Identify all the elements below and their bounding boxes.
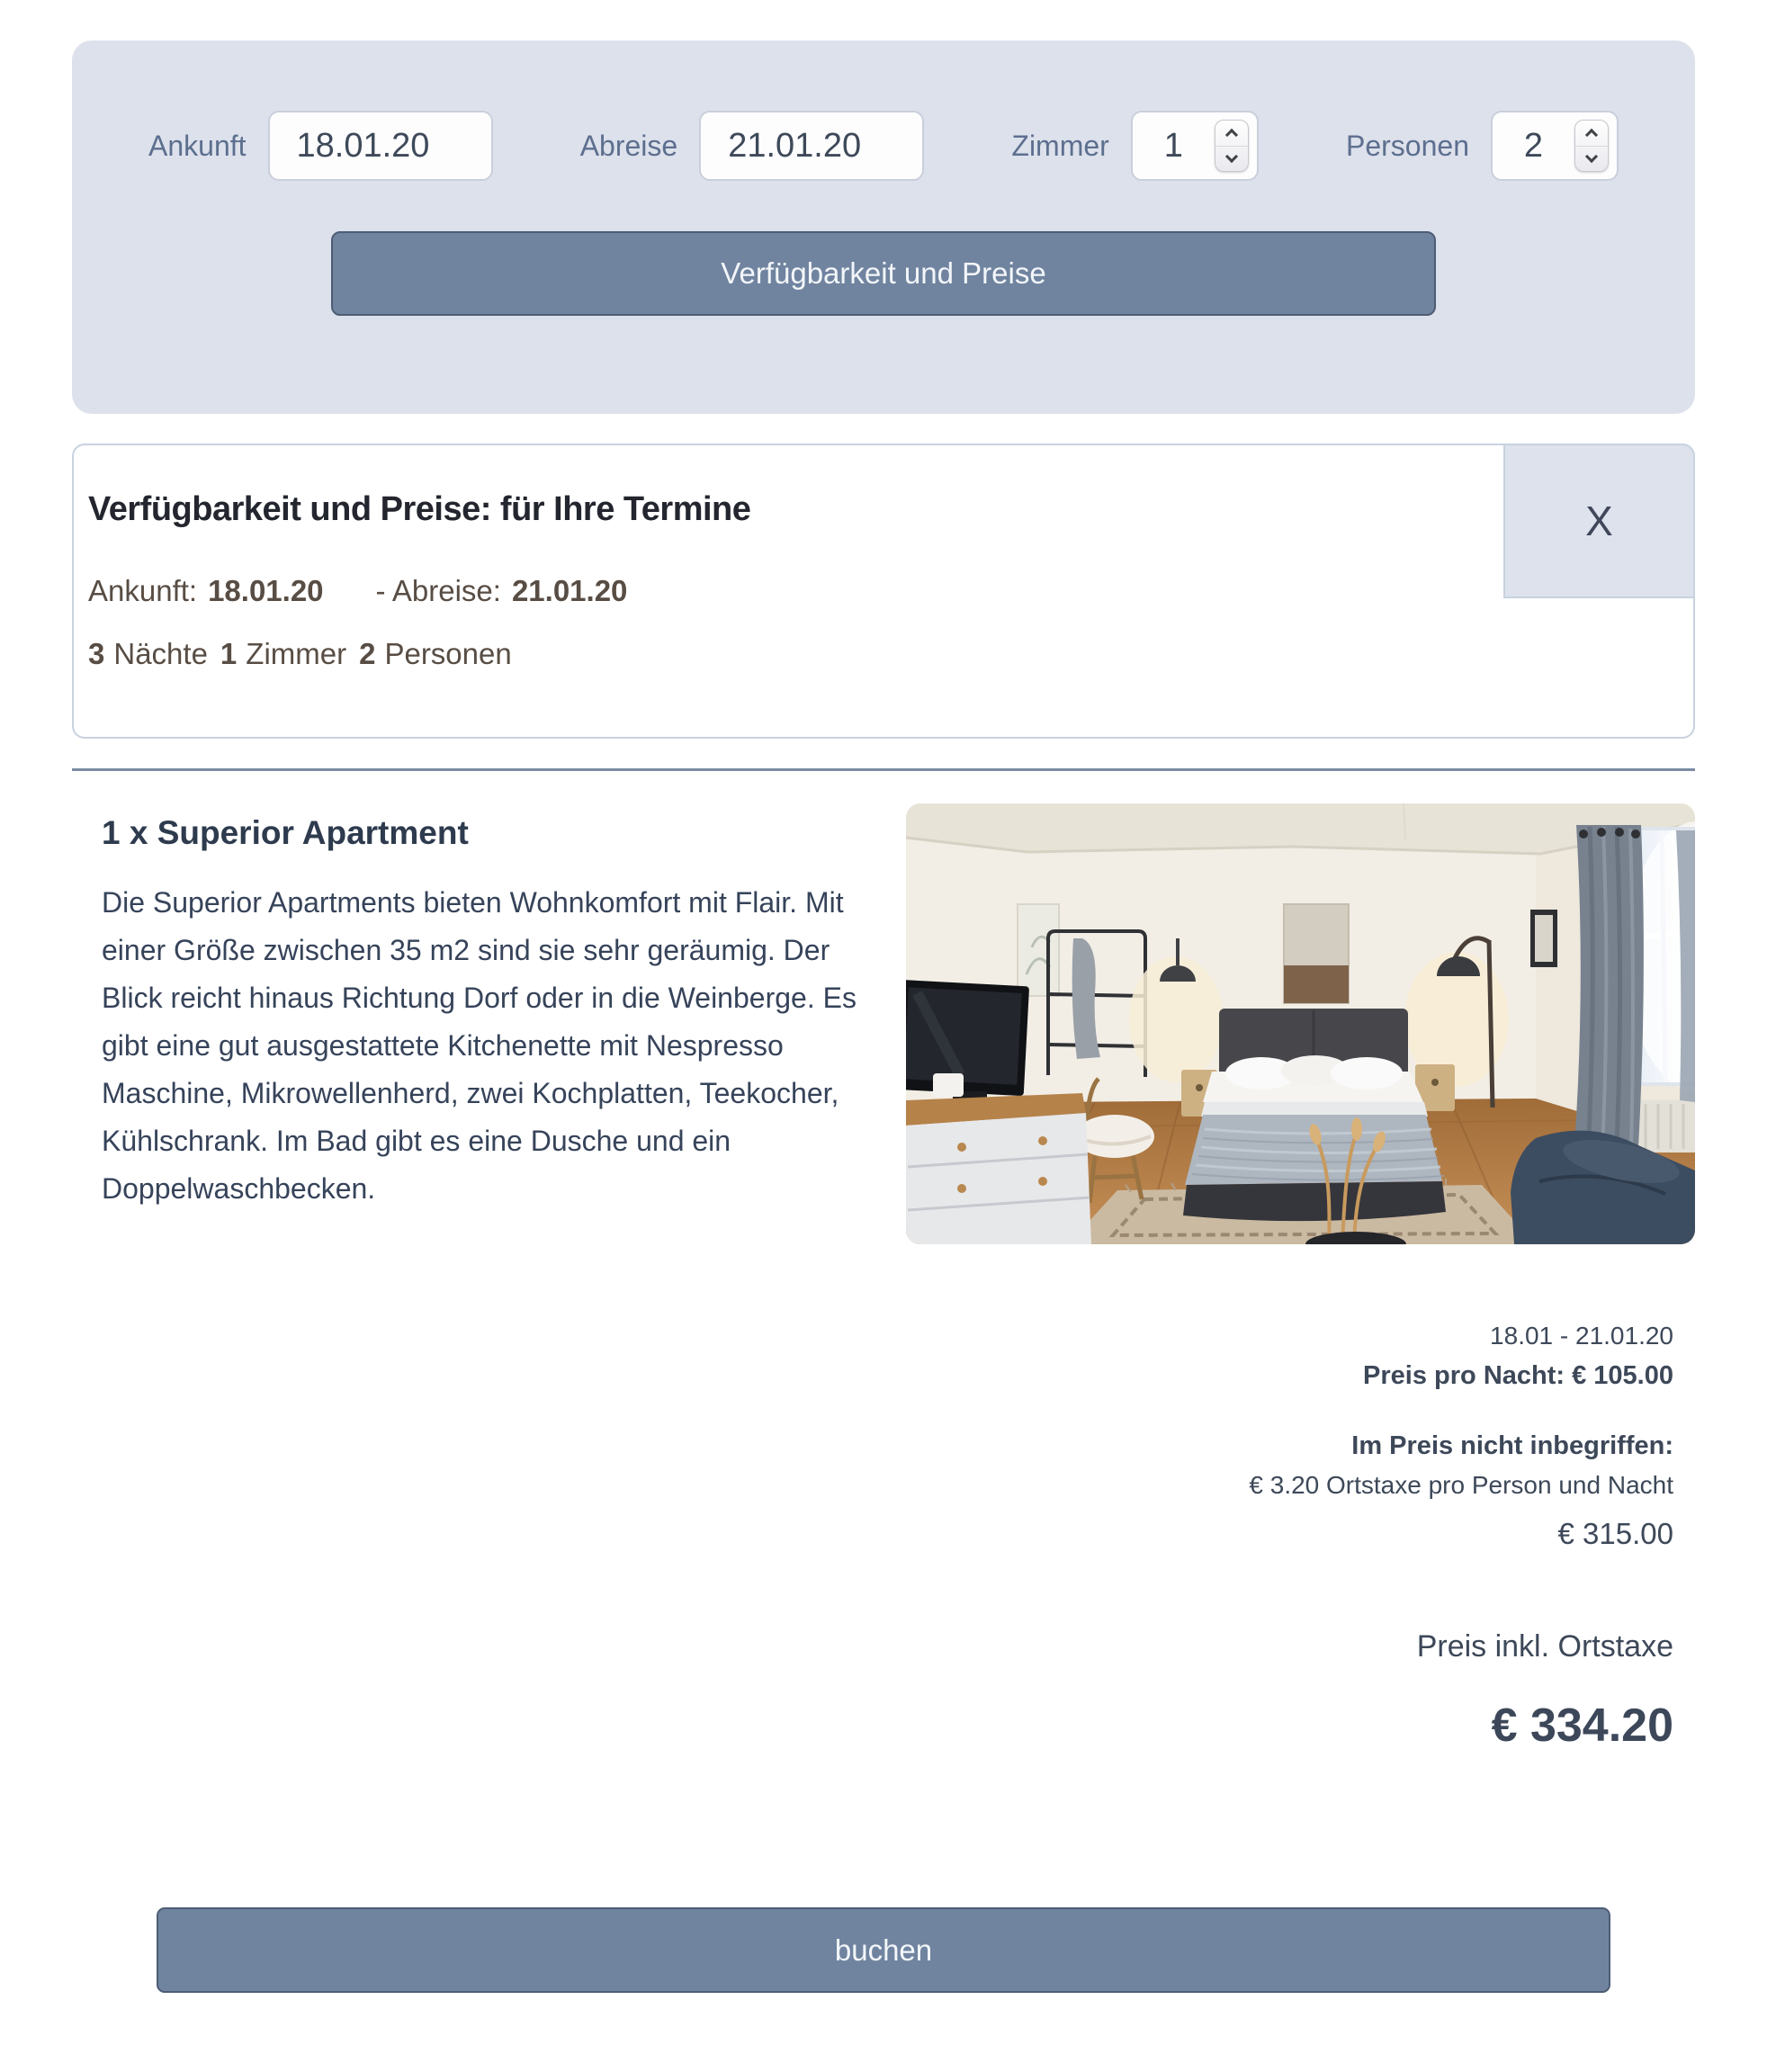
nights-count: 3 — [88, 637, 104, 670]
arrival-date-input[interactable] — [268, 111, 493, 181]
arrival-label: Ankunft — [148, 130, 247, 163]
chevron-up-icon — [1225, 129, 1238, 141]
search-fields-row: Ankunft Abreise Zimmer 1 — [148, 111, 1619, 181]
apartment-text-column: 1 x Superior Apartment Die Superior Apar… — [102, 803, 862, 1213]
persons-stepper-down-button[interactable] — [1575, 146, 1608, 172]
departure-label: Abreise — [580, 130, 678, 163]
apartment-section: 1 x Superior Apartment Die Superior Apar… — [72, 803, 1695, 1244]
persons-word: Personen — [384, 637, 511, 670]
persons-input[interactable]: 2 — [1491, 111, 1619, 181]
departure-text-label: - Abreise: — [376, 574, 501, 607]
search-panel: Ankunft Abreise Zimmer 1 — [72, 40, 1695, 414]
persons-label: Personen — [1346, 130, 1469, 163]
departure-date-input[interactable] — [699, 111, 924, 181]
apartment-title: 1 x Superior Apartment — [102, 814, 862, 852]
nights-word: Nächte — [113, 637, 208, 670]
field-departure: Abreise — [580, 111, 925, 181]
apartment-photo — [906, 803, 1695, 1244]
pricing-block: 18.01 - 21.01.20 Preis pro Nacht: € 105.… — [0, 1316, 1673, 1753]
total-price-label: Preis inkl. Ortstaxe — [0, 1629, 1673, 1664]
results-title: Verfügbarkeit und Preise: für Ihre Termi… — [88, 490, 1477, 529]
chevron-down-icon — [1225, 150, 1238, 163]
rooms-stepper[interactable] — [1215, 120, 1249, 172]
persons-count: 2 — [359, 637, 375, 670]
chevron-down-icon — [1585, 150, 1598, 163]
persons-stepper-up-button[interactable] — [1575, 121, 1608, 146]
price-per-night: Preis pro Nacht: € 105.00 — [0, 1356, 1673, 1395]
persons-value: 2 — [1493, 127, 1574, 166]
results-card: X Verfügbarkeit und Preise: für Ihre Ter… — [72, 444, 1695, 739]
field-arrival: Ankunft — [148, 111, 493, 181]
persons-stepper[interactable] — [1574, 120, 1609, 172]
total-price: € 334.20 — [0, 1699, 1673, 1753]
apartment-description: Die Superior Apartments bieten Wohnkomfo… — [102, 879, 862, 1213]
dates-line: Ankunft:18.01.20- Abreise:21.01.20 — [88, 574, 1477, 608]
rooms-word: Zimmer — [246, 637, 346, 670]
close-button[interactable]: X — [1503, 444, 1695, 598]
summary-line: 3Nächte1Zimmer2Personen — [88, 637, 1477, 671]
departure-text-value: 21.01.20 — [512, 574, 627, 607]
rooms-stepper-down-button[interactable] — [1215, 146, 1248, 172]
availability-search-button[interactable]: Verfügbarkeit und Preise — [331, 231, 1436, 316]
arrival-text-value: 18.01.20 — [208, 574, 323, 607]
chevron-up-icon — [1585, 129, 1598, 141]
section-divider — [72, 768, 1695, 771]
book-button[interactable]: buchen — [157, 1907, 1610, 1993]
rooms-label: Zimmer — [1011, 130, 1108, 163]
rooms-count: 1 — [220, 637, 237, 670]
subtotal-price: € 315.00 — [0, 1514, 1673, 1554]
field-rooms: Zimmer 1 — [1011, 111, 1258, 181]
arrival-text-label: Ankunft: — [88, 574, 197, 607]
rooms-stepper-up-button[interactable] — [1215, 121, 1248, 146]
pricing-date-range: 18.01 - 21.01.20 — [0, 1316, 1673, 1356]
not-included-label: Im Preis nicht inbegriffen: — [0, 1426, 1673, 1466]
rooms-input[interactable]: 1 — [1131, 111, 1259, 181]
city-tax-line: € 3.20 Ortstaxe pro Person und Nacht — [0, 1466, 1673, 1505]
rooms-value: 1 — [1133, 127, 1215, 166]
field-persons: Personen 2 — [1346, 111, 1619, 181]
